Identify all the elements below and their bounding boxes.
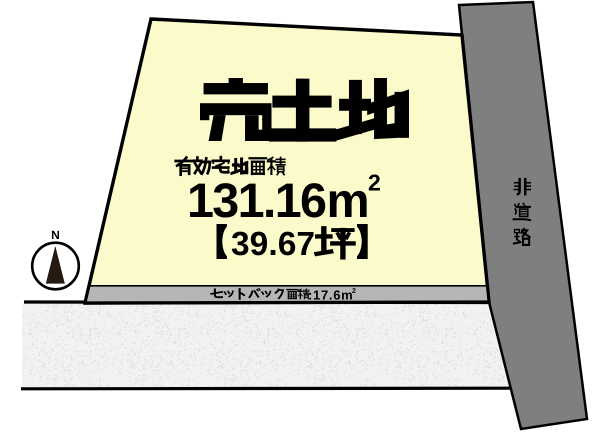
svg-text:N: N bbox=[51, 228, 60, 242]
svg-text::17.6m: :17.6m bbox=[308, 287, 353, 302]
svg-text:131.16: 131.16 bbox=[187, 174, 327, 228]
svg-text:39.67: 39.67 bbox=[231, 226, 315, 263]
svg-text:2: 2 bbox=[368, 170, 381, 196]
svg-text:m: m bbox=[327, 174, 370, 228]
svg-text:2: 2 bbox=[352, 288, 356, 295]
